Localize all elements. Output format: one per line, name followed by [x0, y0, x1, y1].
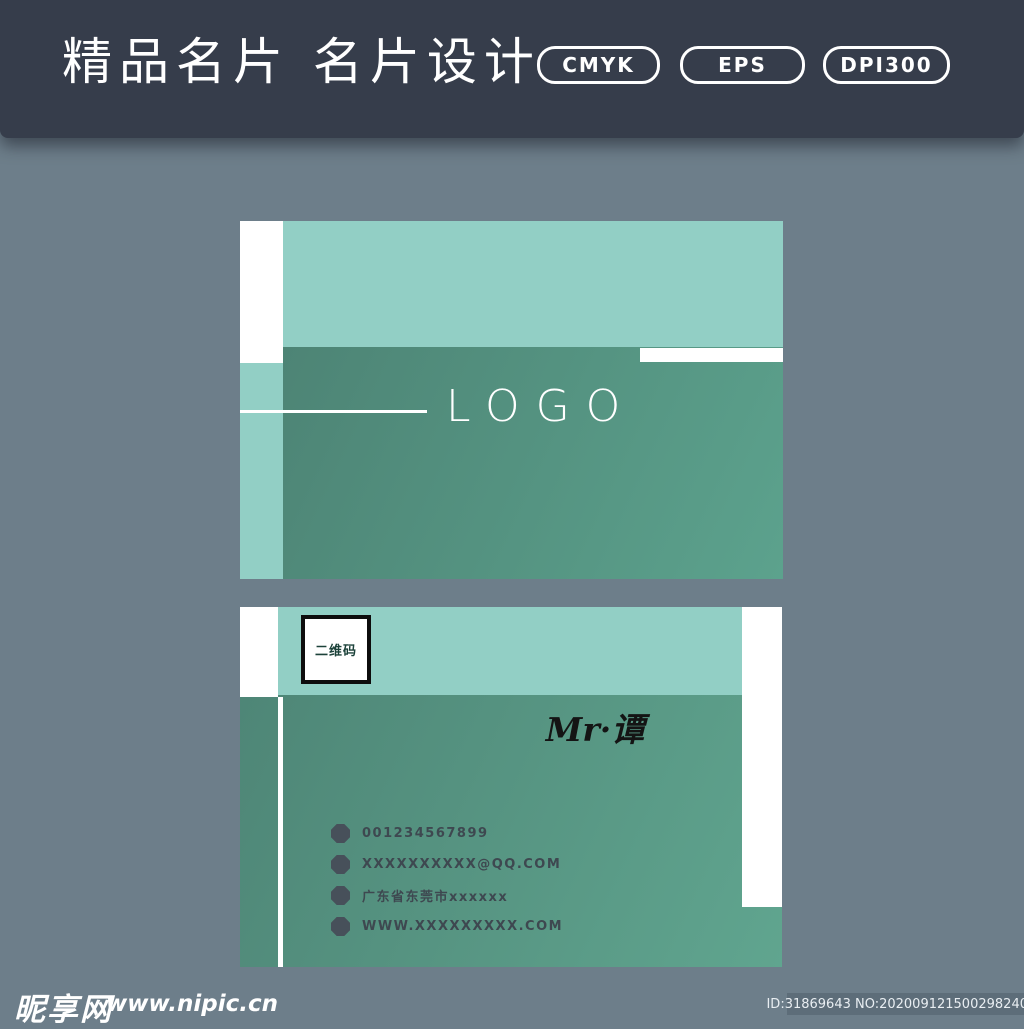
email-bullet-icon — [331, 855, 350, 874]
image-id-text: ID:31869643 NO:20200912150029824000 — [766, 997, 1024, 1012]
contact-email: XXXXXXXXXX@QQ.COM — [362, 857, 561, 872]
person-name: Mr·谭 — [530, 703, 660, 751]
contact-website: WWW.XXXXXXXXX.COM — [362, 919, 563, 934]
badge-eps: EPS — [680, 46, 805, 84]
image-id-badge: ID:31869643 NO:20200912150029824000 — [787, 993, 1024, 1015]
card-back-right-white-strip — [742, 607, 782, 907]
badge-dpi300-label: DPI300 — [840, 53, 932, 77]
badge-eps-label: EPS — [718, 53, 767, 77]
contact-address: 广东省东莞市xxxxxx — [362, 886, 508, 905]
site-url: www.nipic.cn — [106, 991, 278, 1017]
website-bullet-icon — [331, 917, 350, 936]
card-front-divider-line — [240, 410, 427, 413]
contact-row-phone: 001234567899 — [331, 824, 563, 843]
logo-text: LOGO — [446, 384, 636, 430]
business-card-back: 二维码 Mr·谭 001234567899 XXXXXXXXXX@QQ.COM … — [240, 607, 782, 967]
contact-row-address: 广东省东莞市xxxxxx — [331, 886, 563, 905]
badge-cmyk-label: CMYK — [562, 53, 635, 77]
address-bullet-icon — [331, 886, 350, 905]
phone-bullet-icon — [331, 824, 350, 843]
badge-dpi300: DPI300 — [823, 46, 950, 84]
card-back-left-white-strip — [240, 607, 278, 697]
site-logo-text: 昵享网 — [14, 984, 113, 1029]
page-title: 精品名片 名片设计 — [62, 34, 541, 90]
qr-code-placeholder: 二维码 — [301, 615, 371, 684]
business-card-front: LOGO — [240, 221, 783, 579]
card-front-right-white-bar — [640, 348, 783, 362]
card-front-left-white-bar — [240, 221, 283, 363]
contact-row-email: XXXXXXXXXX@QQ.COM — [331, 855, 563, 874]
contact-row-website: WWW.XXXXXXXXX.COM — [331, 917, 563, 936]
contact-phone: 001234567899 — [362, 826, 489, 841]
qr-code-label: 二维码 — [315, 640, 357, 659]
badge-cmyk: CMYK — [537, 46, 660, 84]
contact-list: 001234567899 XXXXXXXXXX@QQ.COM 广东省东莞市xxx… — [331, 824, 563, 948]
card-back-thin-white-line — [278, 697, 283, 967]
header-bar: 精品名片 名片设计 CMYK EPS DPI300 — [0, 0, 1024, 138]
